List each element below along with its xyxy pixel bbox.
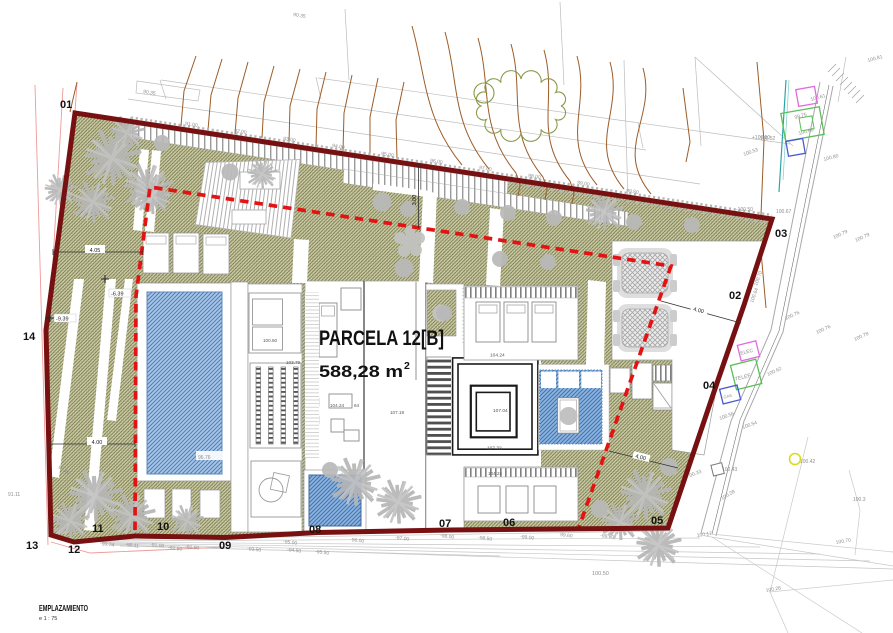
- svg-text:EMPLAZAMIENTO: EMPLAZAMIENTO: [39, 604, 88, 613]
- svg-text:100.50: 100.50: [263, 338, 277, 343]
- svg-text:05: 05: [651, 515, 663, 527]
- svg-text:104.24: 104.24: [330, 403, 344, 408]
- svg-text:11: 11: [92, 523, 104, 535]
- svg-text:12: 12: [68, 544, 80, 556]
- svg-text:07: 07: [439, 518, 451, 530]
- svg-text:104.24: 104.24: [488, 471, 502, 476]
- svg-text:08: 08: [309, 524, 321, 536]
- svg-text:3.00: 3.00: [412, 195, 418, 206]
- svg-text:103.79: 103.79: [286, 360, 300, 365]
- svg-text:4.00: 4.00: [92, 440, 103, 446]
- svg-text:e 1 : 75: e 1 : 75: [39, 616, 57, 622]
- svg-text:100.67: 100.67: [776, 209, 792, 215]
- svg-text:-6.39: -6.39: [111, 292, 124, 298]
- svg-text:96.76: 96.76: [198, 455, 211, 461]
- svg-text:10: 10: [157, 521, 169, 533]
- svg-text:03: 03: [775, 228, 787, 240]
- svg-text:91.11: 91.11: [8, 492, 20, 498]
- svg-text:100.50: 100.50: [592, 571, 609, 577]
- svg-text:-100.50: -100.50: [736, 207, 753, 213]
- svg-text:100.42: 100.42: [800, 459, 816, 465]
- svg-text:13: 13: [26, 540, 38, 552]
- svg-text:01: 01: [60, 99, 72, 111]
- svg-text:02: 02: [729, 290, 741, 302]
- svg-text:107.19: 107.19: [390, 410, 404, 415]
- svg-text:107.04: 107.04: [493, 408, 508, 414]
- svg-text:09: 09: [219, 540, 231, 552]
- svg-text:588,28 m: 588,28 m: [319, 363, 403, 381]
- svg-text:14: 14: [23, 331, 36, 343]
- svg-text:-9.39: -9.39: [56, 317, 69, 323]
- svg-text:4.05: 4.05: [90, 248, 101, 254]
- svg-text:64: 64: [354, 403, 360, 408]
- svg-text:104.24: 104.24: [490, 353, 505, 359]
- svg-text:107.32: 107.32: [487, 446, 502, 452]
- svg-text:06: 06: [503, 517, 515, 529]
- svg-text:100.52: 100.52: [760, 136, 776, 142]
- svg-text:2: 2: [404, 360, 410, 372]
- svg-text:100.3: 100.3: [853, 497, 866, 503]
- svg-text:PARCELA 12[B]: PARCELA 12[B]: [319, 327, 444, 350]
- svg-text:04: 04: [703, 380, 716, 392]
